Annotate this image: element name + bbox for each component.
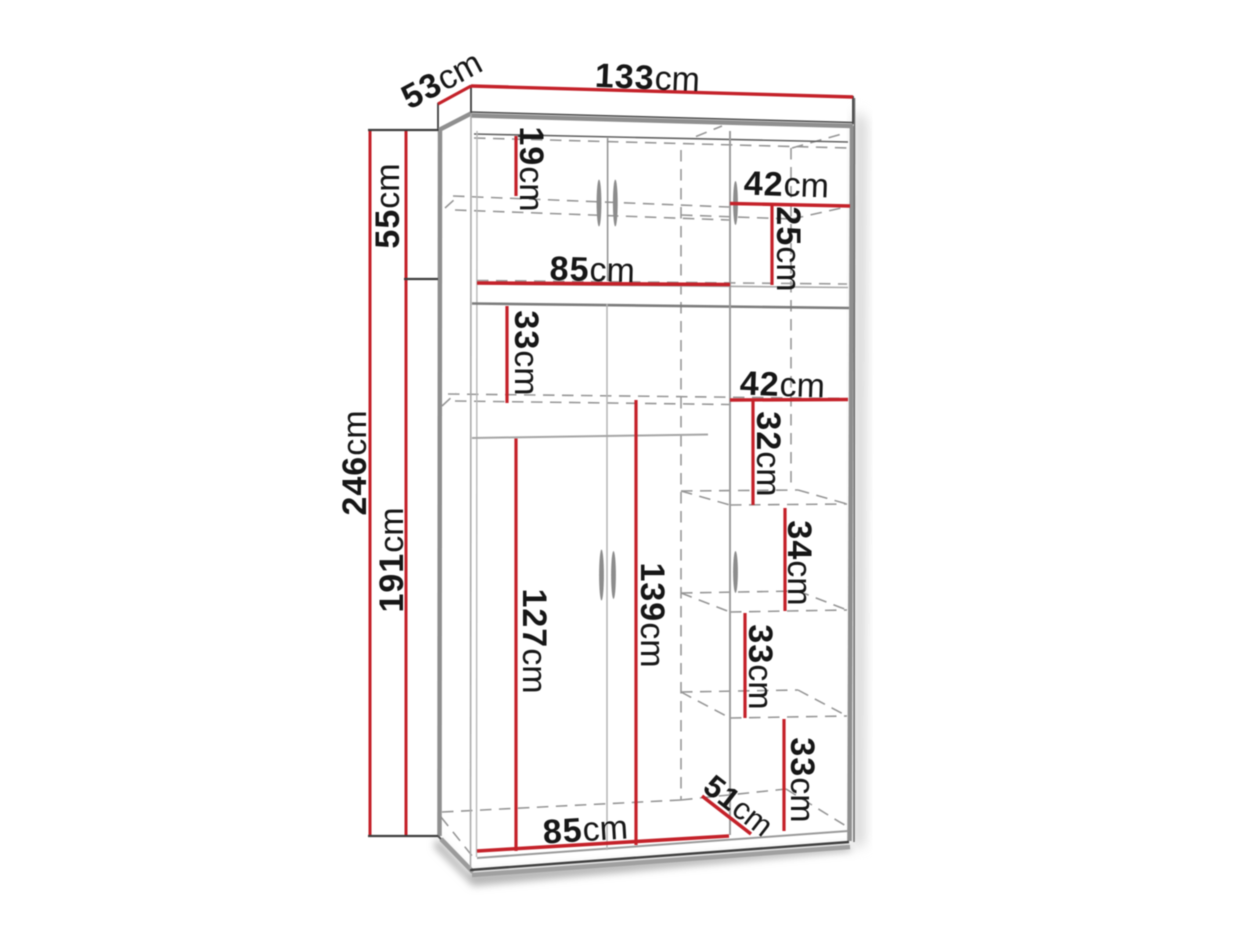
svg-text:85cm: 85cm <box>542 808 629 851</box>
svg-text:139cm: 139cm <box>633 562 671 667</box>
svg-text:133cm: 133cm <box>594 57 701 100</box>
svg-text:55cm: 55cm <box>369 163 407 248</box>
svg-text:34cm: 34cm <box>780 520 818 605</box>
svg-text:33cm: 33cm <box>507 310 545 395</box>
svg-text:191cm: 191cm <box>373 507 411 612</box>
svg-text:33cm: 33cm <box>783 737 821 822</box>
svg-text:85cm: 85cm <box>549 250 635 290</box>
svg-text:246cm: 246cm <box>336 410 374 515</box>
svg-text:42cm: 42cm <box>743 165 829 206</box>
svg-text:19cm: 19cm <box>512 126 550 211</box>
svg-text:25cm: 25cm <box>769 206 807 291</box>
svg-text:33cm: 33cm <box>741 624 779 709</box>
svg-text:127cm: 127cm <box>515 588 553 693</box>
svg-text:42cm: 42cm <box>739 365 825 406</box>
svg-text:32cm: 32cm <box>749 411 787 496</box>
